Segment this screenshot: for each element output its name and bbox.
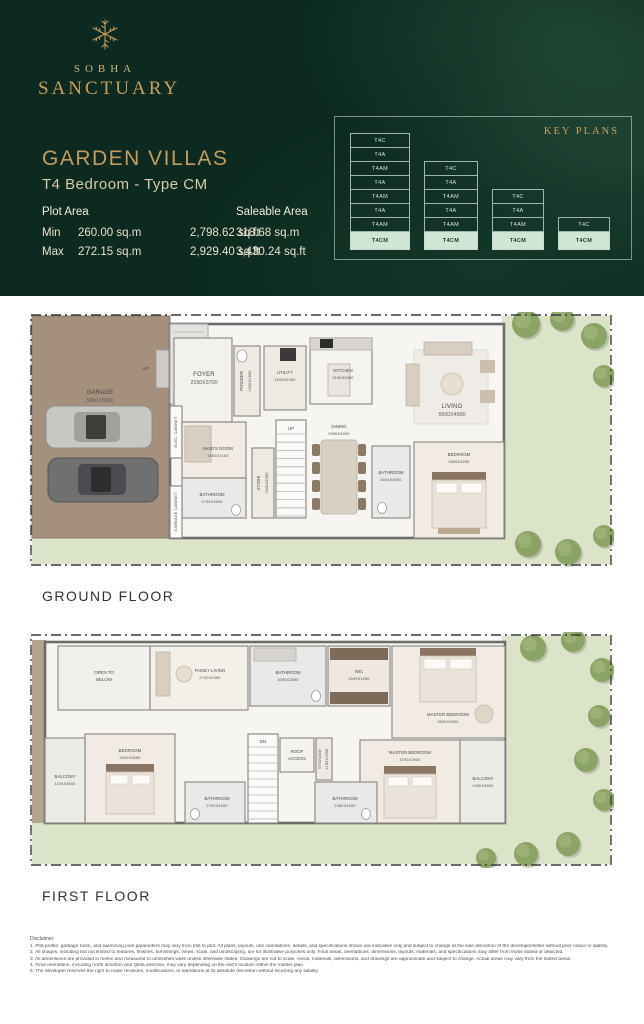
key-plan-unit: T4CM [492, 232, 544, 250]
room-dims: 1100X3500 [55, 782, 76, 786]
toilet-icon [232, 505, 241, 516]
room-label: KITCHEN [333, 368, 352, 373]
room-label: OPEN TO [94, 670, 114, 675]
room-label: BEDROOM [119, 748, 142, 753]
header-banner: SOBHA SANCTUARY GARDEN VILLAS T4 Bedroom… [0, 0, 644, 296]
brand-name: SOBHA [38, 63, 172, 75]
plot-min-label: Min [42, 227, 78, 239]
first-floor-label: FIRST FLOOR [42, 888, 151, 904]
room-dims: 3700X3900 [399, 758, 420, 762]
disclaimer-line: 5. The developer reserves the right to m… [30, 969, 614, 975]
key-plan-unit: T4A [350, 148, 410, 162]
room-label: BATHROOM [378, 470, 403, 475]
balcony [45, 738, 85, 823]
key-plan-unit: T4AM [492, 218, 544, 232]
sofa-icon [424, 342, 472, 355]
toilet-icon [237, 350, 247, 362]
room-label: BATHROOM [275, 670, 300, 675]
kitchen-counter [310, 338, 372, 350]
bed-icon [420, 648, 476, 702]
plot-area-block: Plot Area Min 260.00 sq.m 2,798.62 sq.ft… [42, 206, 260, 265]
key-plan-unit: T4AM [424, 218, 478, 232]
saleable-area-label: Saleable Area [236, 206, 308, 218]
room-dims: 3050X2550 [277, 678, 298, 682]
table-icon [176, 666, 192, 682]
room-label: BALCONY [473, 776, 494, 781]
room-dims: 5500X4500 [438, 412, 465, 418]
armchair-icon [480, 360, 495, 373]
saleable-area-block: Saleable Area 318.68 sq.m 3,430.24 sq.ft [236, 206, 308, 265]
room-dims: 1600X3000 [380, 478, 401, 482]
armchair-icon [480, 390, 495, 403]
lawn [502, 316, 610, 564]
wardrobe-icon [330, 648, 388, 660]
room-label: STORAGE [318, 749, 322, 769]
car-icon [48, 458, 158, 502]
key-plan-unit: T4AM [350, 162, 410, 176]
key-plan-unit: T4A [350, 204, 410, 218]
key-plans-box: KEY PLANS T4CT4AT4AMT4AT4AMT4AT4AMT4CMT4… [334, 116, 632, 260]
room-label: MASTER BEDROOM [427, 712, 470, 717]
room-dims: 3500X3900 [437, 720, 458, 724]
key-plan-stack: T4CT4AT4AMT4AT4AMT4CM [424, 161, 478, 250]
room-dims: 2700X1600 [201, 500, 222, 504]
ground-floor-plan: GARAGE 5650X5500 UP FOYER 2150X3700 POWD… [28, 312, 614, 568]
room-dims: 1200X2400 [274, 378, 295, 382]
room-dims: 2600X2100 [207, 454, 228, 458]
dining-table-icon [321, 440, 357, 514]
plot-min-sqm: 260.00 sq.m [78, 227, 190, 239]
room-label: FOYER [193, 372, 215, 378]
key-plan-unit: T4A [424, 204, 478, 218]
up-label: UP [288, 426, 294, 431]
ground-floor-label: GROUND FLOOR [42, 588, 174, 604]
room-label: GARBAGE CABINET [174, 492, 178, 532]
key-plan-unit: T4A [424, 176, 478, 190]
key-plan-unit: T4C [350, 133, 410, 148]
car-icon [46, 406, 152, 448]
sofa-icon [156, 652, 170, 696]
key-plan-unit: T4CM [558, 232, 610, 250]
page-title: GARDEN VILLAS [42, 147, 228, 171]
room-label: BATHROOM [332, 796, 357, 801]
key-plan-unit: T4AM [350, 190, 410, 204]
sofa-icon [406, 364, 419, 406]
entry-steps [156, 350, 170, 388]
balcony [460, 740, 505, 823]
room-label: ROOF [291, 749, 304, 754]
toilet-icon [191, 809, 200, 820]
room-dims: 1150X1950 [325, 749, 329, 770]
bed-icon [432, 472, 486, 534]
room-label: MAID'S ROOM [203, 446, 233, 451]
brochure-page: { "header": { "brand": {"name": "SOBHA",… [0, 0, 644, 1024]
room-label: BELOW [96, 677, 113, 682]
disclaimer-line: 2. All images, including but not limited… [30, 950, 614, 956]
coffee-table-icon [441, 373, 463, 395]
room-dims: 2950X4000 [328, 432, 349, 436]
room-label: DINING [331, 424, 347, 429]
room-dims: 2350X1600 [334, 804, 355, 808]
room-label: ACCESS [288, 756, 306, 761]
key-plan-unit: T4CM [350, 232, 410, 250]
room-dims: 3100X2550 [332, 376, 353, 380]
saleable-sqft: 3,430.24 sq.ft [236, 246, 308, 258]
brand-block: SOBHA SANCTUARY [38, 16, 172, 100]
room-dims: 2150X3700 [190, 380, 217, 386]
dn-label: DN [260, 739, 266, 744]
hob-icon [320, 339, 333, 348]
room-dims: 1500X2050 [265, 472, 269, 493]
disclaimer-title: Disclaimer: [30, 936, 614, 942]
room-dims: 3200X3550 [119, 756, 140, 760]
key-plan-stack: T4CT4CM [558, 217, 610, 250]
saleable-sqm: 318.68 sq.m [236, 227, 308, 239]
key-plan-unit: T4AM [350, 218, 410, 232]
chair-icon [475, 705, 493, 723]
room-label: MASTER BEDROOM [389, 750, 432, 755]
room-label: POWDER [239, 371, 244, 391]
room-label: FAMILY LIVING [195, 668, 226, 673]
page-subtitle: T4 Bedroom - Type CM [42, 176, 228, 193]
disclaimer-block: Disclaimer: 1. Plot profile, garbage roo… [30, 936, 614, 975]
room-dims: 2700X2950 [199, 676, 220, 680]
first-floor-plan: OPEN TO BELOW FAMILY LIVING 2700X2950 BA… [28, 632, 614, 868]
disclaimer-line: 3. All dimensions are provided in metric… [30, 957, 614, 963]
key-plan-stack: T4CT4AT4AMT4AT4AMT4AT4AMT4CM [350, 133, 410, 250]
brand-subname: SANCTUARY [38, 78, 172, 100]
bed-icon [384, 766, 436, 818]
room-label: STORE [256, 475, 261, 490]
room-dims: 3565X3250 [448, 460, 469, 464]
bed-icon [106, 764, 154, 814]
toilet-icon [362, 809, 371, 820]
room-dims: 5650X5500 [86, 398, 113, 404]
vanity-icon [254, 648, 296, 661]
plot-max-sqm: 272.15 sq.m [78, 246, 190, 258]
room-label: UTILITY [277, 370, 293, 375]
plot-max-label: Max [42, 246, 78, 258]
key-plan-unit: T4C [492, 189, 544, 204]
key-plan-unit: T4A [492, 204, 544, 218]
toilet-icon [378, 503, 387, 514]
key-plan-stacks: T4CT4AT4AMT4AT4AMT4AT4AMT4CMT4CT4AT4AMT4… [350, 133, 610, 250]
up-label: UP [143, 366, 149, 371]
room-label: WIC [355, 669, 364, 674]
key-plan-unit: T4A [350, 176, 410, 190]
room-label: BATHROOM [204, 796, 229, 801]
room-label: BALCONY [55, 774, 76, 779]
wardrobe-icon [330, 692, 388, 704]
room-label: ELEC. CABINET [174, 416, 178, 448]
room-label: BATHROOM [199, 492, 224, 497]
roof-access [280, 738, 314, 772]
key-plan-unit: T4C [558, 217, 610, 232]
room-label: LIVING [442, 404, 463, 410]
key-plan-unit: T4CM [424, 232, 478, 250]
room-label: GARAGE [87, 390, 114, 396]
room-dims: 1400X4650 [472, 784, 493, 788]
toilet-icon [312, 691, 321, 702]
key-plan-stack: T4CT4AT4AMT4CM [492, 189, 544, 250]
room-dims: 1300X1800 [248, 370, 252, 391]
appliance-icon [280, 348, 296, 361]
staircase [276, 420, 306, 518]
room-dims: 2700X1600 [206, 804, 227, 808]
room-label: BEDROOM [448, 452, 471, 457]
key-plan-unit: T4C [424, 161, 478, 176]
plot-area-label: Plot Area [42, 206, 260, 218]
sobha-tree-icon [88, 16, 122, 52]
room-dims: 1500X1250 [348, 677, 369, 681]
key-plan-unit: T4AM [424, 190, 478, 204]
